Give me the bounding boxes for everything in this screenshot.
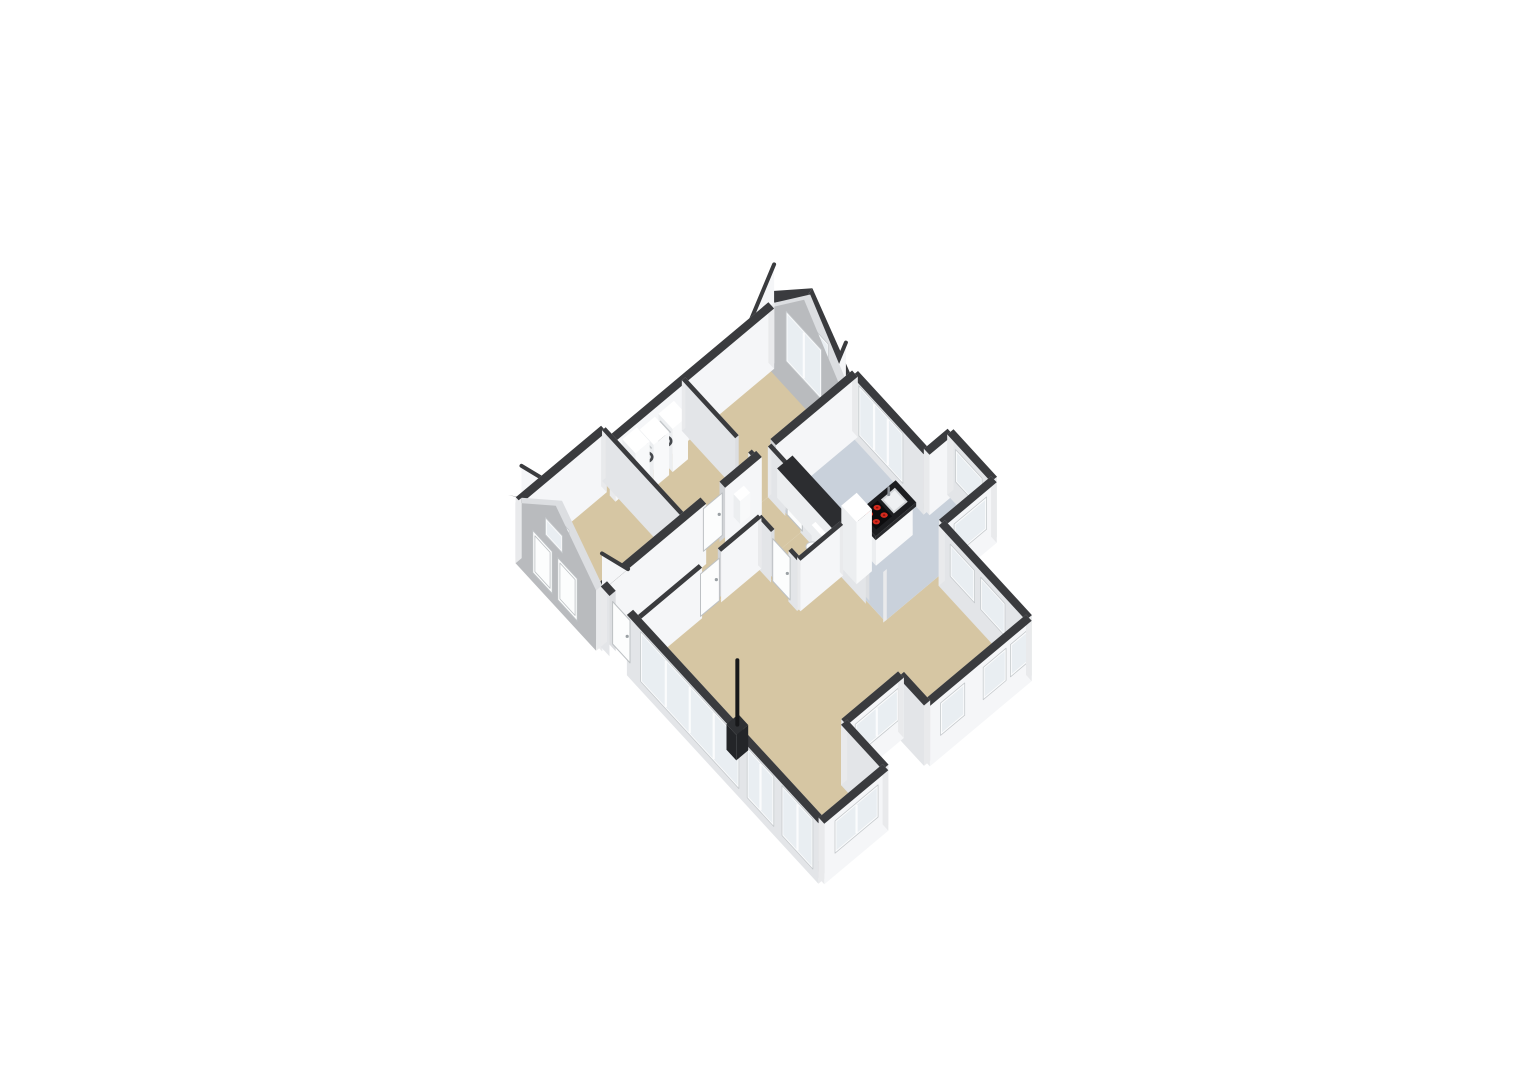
floorplan-canvas: [0, 0, 1527, 1080]
kitchen-tall-cabinet: [841, 493, 872, 585]
floorplan-3d-view: [0, 0, 1527, 1080]
